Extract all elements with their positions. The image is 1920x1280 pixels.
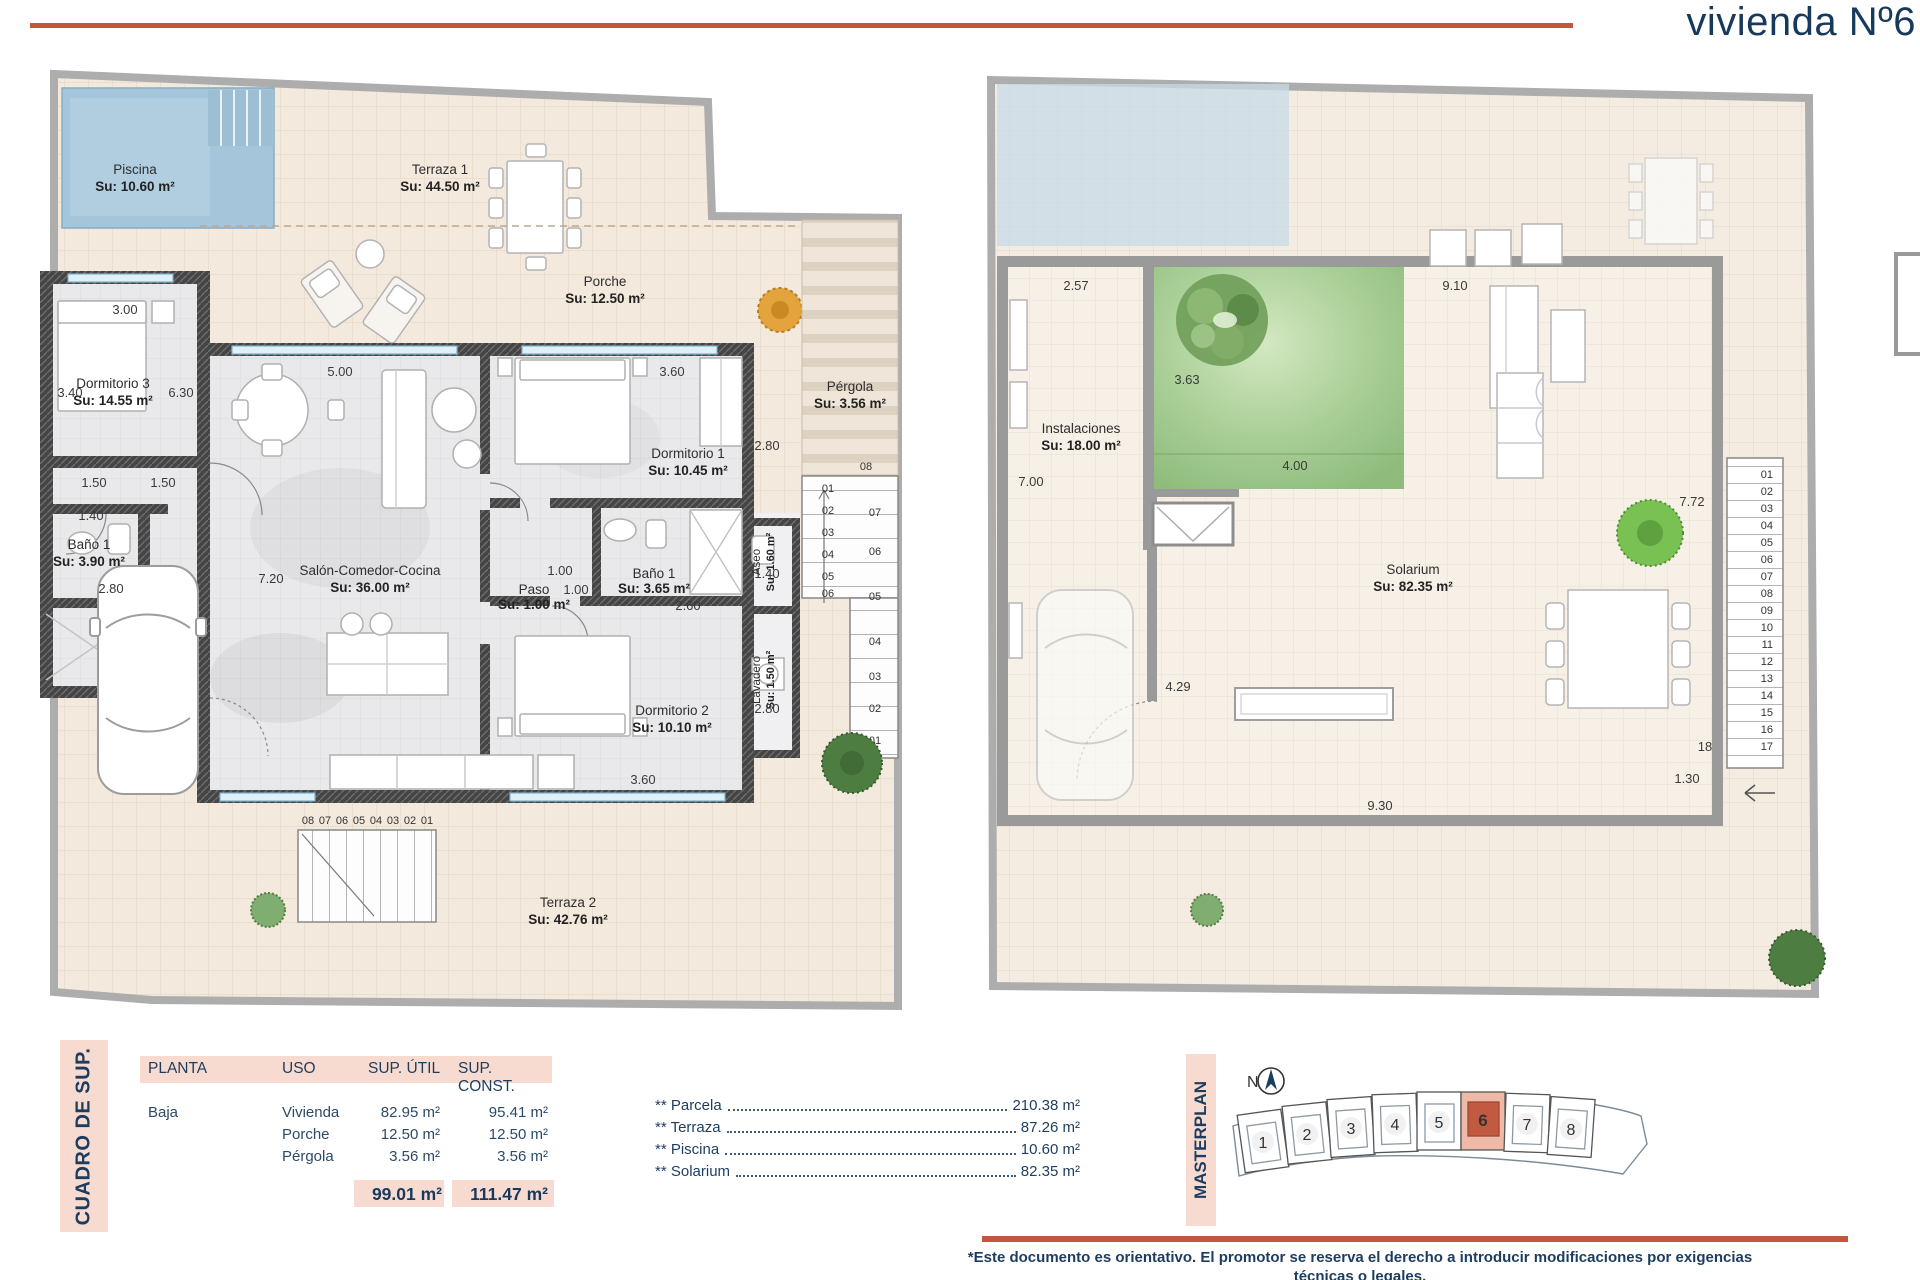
svg-text:2.80: 2.80 [98, 581, 123, 596]
extras-list: ** Parcela 210.38 m² ** Terraza 87.26 m²… [655, 1092, 1080, 1180]
north-compass-icon: N [1247, 1068, 1284, 1094]
col-uso: USO [282, 1060, 316, 1078]
svg-text:4: 4 [1391, 1117, 1400, 1134]
svg-text:03: 03 [387, 815, 399, 827]
svg-text:2.80: 2.80 [754, 701, 779, 716]
svg-text:9.10: 9.10 [1442, 278, 1467, 293]
svg-text:7.00: 7.00 [1018, 474, 1043, 489]
room-area-bano1r: Su: 3.65 m² [618, 581, 691, 596]
svg-text:10: 10 [1761, 622, 1773, 634]
row-const: 3.56 m² [458, 1148, 548, 1165]
svg-text:1: 1 [1259, 1135, 1268, 1152]
neighbor-plan-fragment [1894, 252, 1920, 356]
svg-text:7.72: 7.72 [1679, 494, 1704, 509]
svg-text:06: 06 [1761, 554, 1773, 566]
ghost-car [1037, 590, 1133, 800]
page-title: vivienda Nº6 [1560, 0, 1916, 52]
svg-text:02: 02 [404, 815, 416, 827]
svg-text:14: 14 [1761, 690, 1773, 702]
svg-text:2: 2 [1303, 1127, 1312, 1144]
row-util: 12.50 m² [350, 1126, 440, 1143]
room-area-bano1l: Su: 3.90 m² [53, 554, 126, 569]
room-label-bano1r: Baño 1 [633, 566, 676, 581]
svg-text:7.20: 7.20 [258, 571, 283, 586]
svg-text:02: 02 [869, 703, 881, 715]
car [90, 566, 206, 794]
list-item: ** Parcela 210.38 m² [655, 1092, 1080, 1114]
room-area-instalaciones: Su: 18.00 m² [1041, 438, 1121, 453]
room-label-bano1l: Baño 1 [68, 537, 111, 552]
svg-text:12: 12 [1761, 656, 1773, 668]
svg-text:3.00: 3.00 [112, 302, 137, 317]
svg-text:07: 07 [319, 815, 331, 827]
svg-text:2.60: 2.60 [675, 598, 700, 613]
stairs-terrace [298, 830, 436, 922]
room-label-dorm3: Dormitorio 3 [76, 376, 150, 391]
svg-text:9.30: 9.30 [1367, 798, 1392, 813]
dot-leader [727, 1117, 1016, 1133]
room-area-paso: Su: 1.00 m² [498, 597, 571, 612]
exterior-stair [1727, 458, 1783, 801]
room-label-dorm2: Dormitorio 2 [635, 703, 709, 718]
col-sup-util: SUP. ÚTIL [368, 1060, 440, 1078]
svg-text:3.63: 3.63 [1174, 372, 1199, 387]
areas-table-header: PLANTA USO SUP. ÚTIL SUP. CONST. [140, 1056, 552, 1083]
svg-text:3: 3 [1347, 1121, 1356, 1138]
svg-text:2.57: 2.57 [1063, 278, 1088, 293]
svg-text:08: 08 [1761, 588, 1773, 600]
room-area-terraza2: Su: 42.76 m² [528, 912, 608, 927]
svg-text:1.40: 1.40 [78, 508, 103, 523]
dot-leader [736, 1161, 1016, 1177]
svg-text:15: 15 [1761, 707, 1773, 719]
room-label-pergola: Pérgola [827, 379, 874, 394]
row-const: 95.41 m² [458, 1104, 548, 1121]
planta-value: Baja [148, 1104, 178, 1121]
total-util: 99.01 m² [348, 1184, 442, 1205]
svg-text:N: N [1247, 1074, 1259, 1091]
svg-text:1.50: 1.50 [81, 475, 106, 490]
svg-text:02: 02 [822, 505, 834, 517]
col-sup-const: SUP. CONST. [458, 1060, 552, 1096]
plan-sheet: vivienda Nº6 [0, 0, 1920, 1280]
room-label-terraza2: Terraza 2 [540, 895, 596, 910]
orange-tree [758, 288, 802, 332]
svg-text:4.00: 4.00 [1282, 458, 1307, 473]
svg-text:1.50: 1.50 [150, 475, 175, 490]
room-label-dorm1: Dormitorio 1 [651, 446, 725, 461]
svg-text:05: 05 [869, 591, 881, 603]
svg-text:1.00: 1.00 [547, 563, 572, 578]
svg-text:03: 03 [1761, 503, 1773, 515]
areas-table-side-label: CUADRO DE SUP. [60, 1040, 108, 1232]
ghost-dining [1629, 158, 1713, 244]
col-planta: PLANTA [148, 1060, 207, 1078]
svg-text:06: 06 [869, 546, 881, 558]
svg-text:07: 07 [869, 507, 881, 519]
svg-text:1.40: 1.40 [754, 566, 779, 581]
svg-text:5.00: 5.00 [327, 364, 352, 379]
svg-text:08: 08 [302, 815, 314, 827]
svg-text:01: 01 [421, 815, 433, 827]
dot-leader [728, 1095, 1008, 1111]
ghost-pool [997, 84, 1289, 246]
room-label-terraza1: Terraza 1 [412, 162, 468, 177]
svg-text:18: 18 [1698, 739, 1712, 754]
room-label-paso: Paso [519, 582, 550, 597]
svg-text:01: 01 [1761, 469, 1773, 481]
svg-text:06: 06 [336, 815, 348, 827]
garden-tree [1176, 274, 1268, 366]
room-label-piscina: Piscina [113, 162, 157, 177]
svg-text:5: 5 [1435, 1115, 1444, 1132]
svg-text:04: 04 [869, 636, 881, 648]
svg-text:11: 11 [1762, 639, 1773, 651]
row-uso: Porche [282, 1126, 330, 1143]
room-area-salon: Su: 36.00 m² [330, 580, 410, 595]
svg-text:08: 08 [860, 461, 872, 473]
pool [62, 88, 274, 228]
room-label-instalaciones: Instalaciones [1042, 421, 1121, 436]
planter [1235, 688, 1393, 720]
header-rule [30, 23, 1573, 28]
svg-text:03: 03 [822, 527, 834, 539]
row-util: 3.56 m² [350, 1148, 440, 1165]
svg-text:04: 04 [822, 549, 834, 561]
svg-text:16: 16 [1761, 724, 1773, 736]
stair-numbers-roof: 01 02 03 04 05 06 07 08 09 10 11 12 13 1… [1761, 469, 1773, 753]
svg-text:1.00: 1.00 [563, 582, 588, 597]
svg-text:02: 02 [1761, 486, 1773, 498]
svg-text:01: 01 [822, 483, 834, 495]
svg-text:03: 03 [869, 671, 881, 683]
areas-table: PLANTA USO SUP. ÚTIL SUP. CONST. Baja Vi… [140, 1056, 572, 1226]
svg-text:6.30: 6.30 [168, 385, 193, 400]
svg-text:3.60: 3.60 [630, 772, 655, 787]
footer-rule [982, 1236, 1848, 1242]
svg-text:2.80: 2.80 [754, 438, 779, 453]
list-item: ** Piscina 10.60 m² [655, 1136, 1080, 1158]
room-area-solarium: Su: 82.35 m² [1373, 579, 1453, 594]
roof-hatch [1153, 503, 1233, 545]
room-area-dorm3: Su: 14.55 m² [73, 393, 153, 408]
room-area-dorm1: Su: 10.45 m² [648, 463, 728, 478]
svg-text:Lavadero: Lavadero [751, 656, 763, 704]
list-item: ** Terraza 87.26 m² [655, 1114, 1080, 1136]
masterplan-side-label: MASTERPLAN [1186, 1054, 1216, 1226]
room-label-salon: Salón-Comedor-Cocina [299, 563, 441, 578]
svg-text:05: 05 [1761, 537, 1773, 549]
room-label-porche: Porche [584, 274, 627, 289]
masterplan-map: N 1 2 3 4 5 6 7 8 [1225, 1052, 1655, 1237]
room-label-solarium: Solarium [1386, 562, 1439, 577]
svg-text:8: 8 [1567, 1122, 1576, 1139]
svg-text:7: 7 [1523, 1117, 1532, 1134]
row-uso: Pérgola [282, 1148, 334, 1165]
svg-text:1.30: 1.30 [1674, 771, 1699, 786]
row-uso: Vivienda [282, 1104, 339, 1121]
total-const: 111.47 m² [454, 1184, 548, 1205]
svg-text:13: 13 [1761, 673, 1773, 685]
svg-text:07: 07 [1761, 571, 1773, 583]
svg-text:17: 17 [1761, 741, 1773, 753]
svg-text:04: 04 [370, 815, 382, 827]
pergola-area [802, 220, 898, 475]
disclaimer-es: *Este documento es orientativo. El promo… [955, 1248, 1765, 1280]
list-item: ** Solarium 82.35 m² [655, 1158, 1080, 1180]
room-area-piscina: Su: 10.60 m² [95, 179, 175, 194]
svg-text:04: 04 [1761, 520, 1773, 532]
svg-text:06: 06 [822, 588, 834, 600]
room-area-pergola: Su: 3.56 m² [814, 396, 887, 411]
dot-leader [725, 1139, 1016, 1155]
masterplan-unit-6-number: 6 [1478, 1111, 1487, 1130]
svg-text:09: 09 [1761, 605, 1773, 617]
row-const: 12.50 m² [458, 1126, 548, 1143]
row-util: 82.95 m² [350, 1104, 440, 1121]
floor-plan-ground: Piscina Su: 10.60 m² Terraza 1 Su: 44.50… [40, 58, 905, 1016]
disclaimer: *Este documento es orientativo. El promo… [955, 1248, 1765, 1280]
svg-text:05: 05 [353, 815, 365, 827]
room-area-terraza1: Su: 44.50 m² [400, 179, 480, 194]
room-area-porche: Su: 12.50 m² [565, 291, 645, 306]
roof-dining-set [1546, 590, 1690, 708]
svg-text:Su: 1.60 m²: Su: 1.60 m² [765, 532, 777, 591]
svg-text:05: 05 [822, 571, 834, 583]
svg-text:3.40: 3.40 [57, 385, 82, 400]
room-area-dorm2: Su: 10.10 m² [632, 720, 712, 735]
svg-text:3.60: 3.60 [659, 364, 684, 379]
floor-plan-solarium: Instalaciones Su: 18.00 m² Solarium Su: … [985, 58, 1875, 1016]
svg-text:4.29: 4.29 [1165, 679, 1190, 694]
